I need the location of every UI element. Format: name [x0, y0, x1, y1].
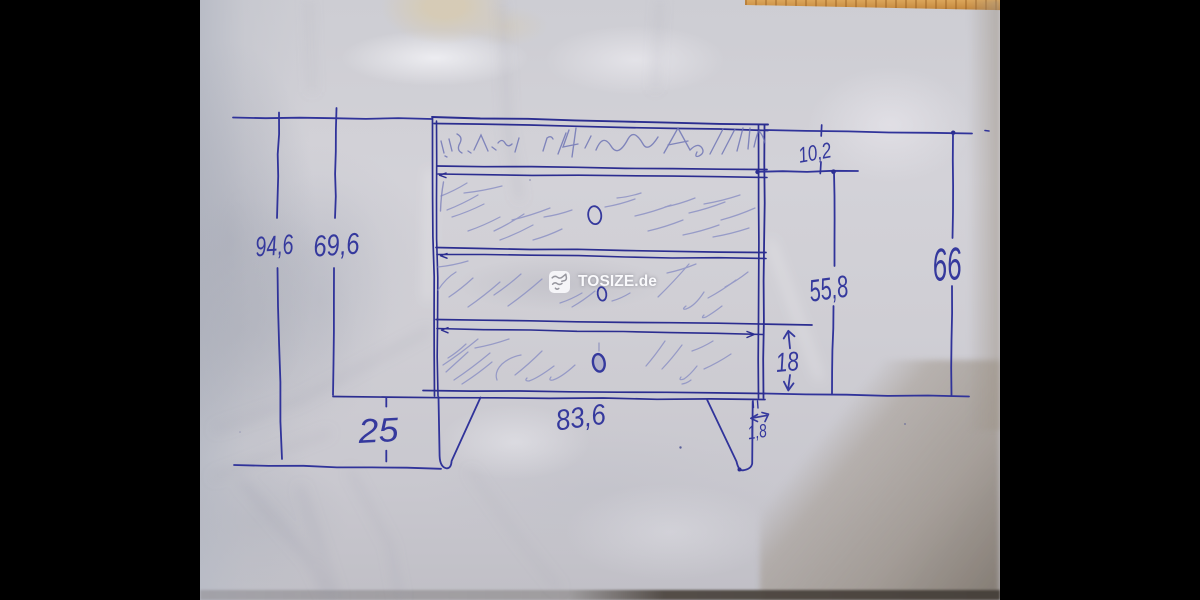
svg-text:83,6: 83,6: [554, 399, 609, 438]
svg-text:10,2: 10,2: [796, 137, 833, 167]
svg-text:94,6: 94,6: [254, 229, 294, 263]
svg-text:18: 18: [774, 346, 800, 378]
svg-text:55,8: 55,8: [807, 268, 851, 308]
svg-text:1,8: 1,8: [746, 421, 768, 444]
svg-text:66: 66: [931, 237, 964, 291]
svg-text:25: 25: [356, 411, 399, 451]
svg-text:69,6: 69,6: [312, 227, 360, 263]
